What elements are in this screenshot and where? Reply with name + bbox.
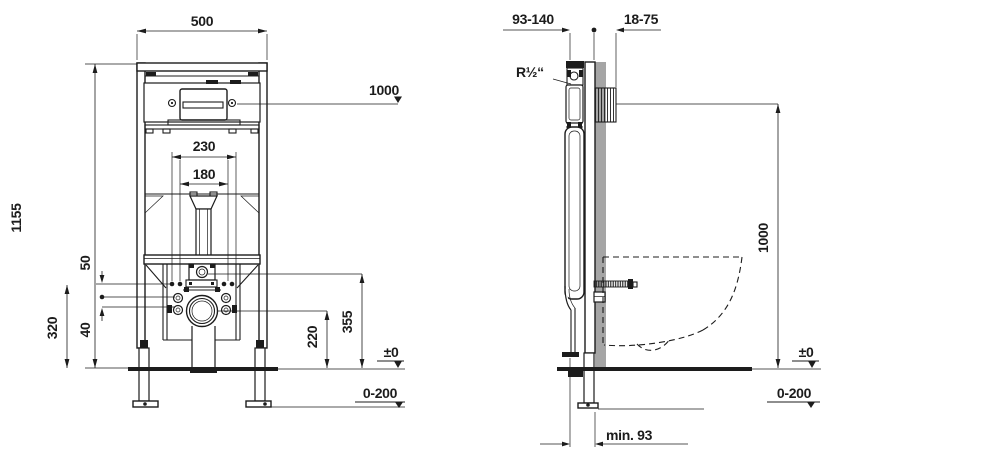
dim-actuator-height-side: 1000: [616, 104, 780, 368]
floor-level-front: ±0: [377, 344, 404, 368]
dim-label: 180: [193, 166, 216, 182]
fixing-dot: [230, 282, 235, 287]
front-left-leg: [139, 348, 149, 401]
water-connection-fitting: [570, 72, 578, 80]
dim-finish-depth: 18-75: [616, 11, 661, 87]
reference-point: [100, 295, 105, 300]
dim-label: 355: [339, 310, 355, 333]
dim-inlet-height: 355: [208, 274, 364, 368]
floor-adjust-side: 0-200: [767, 385, 820, 408]
fixing-dot: [178, 282, 183, 287]
dim-label: ±0: [384, 344, 399, 360]
dim-label: 1155: [8, 203, 24, 233]
dim-label: 93-140: [512, 11, 554, 27]
cistern-side: [562, 61, 584, 357]
dim-min-wall-distance: min. 93: [540, 358, 688, 447]
water-inlet: [197, 267, 208, 278]
drain-outlet: [187, 296, 218, 327]
dim-frame-depth: 93-140: [503, 11, 596, 60]
side-leg: [584, 353, 594, 403]
fixing-bolt: [594, 281, 629, 287]
wc-bowl-outline: [603, 257, 742, 350]
front-view: 500 1155 1000 230: [8, 13, 405, 408]
side-frame-profile: [585, 62, 595, 353]
dim-frame-width: 500: [137, 13, 267, 60]
flush-bend-funnel: [190, 196, 217, 209]
flush-pipe-cap: [562, 352, 579, 357]
fixing-dot: [170, 282, 175, 287]
corner-brace-right: [241, 196, 259, 213]
dim-label: min. 93: [606, 427, 653, 443]
support-crossbar: [144, 255, 260, 264]
water-connection-label: R½“: [516, 64, 571, 84]
dim-label: 230: [193, 138, 216, 154]
dim-label: 220: [304, 325, 320, 348]
dim-label: 40: [77, 322, 93, 337]
corner-brace-left: [145, 196, 163, 213]
dim-fixing-offsets: 50 40 320: [44, 255, 175, 368]
dim-label: 50: [77, 255, 93, 270]
floor-adjust-front: 0-200: [355, 385, 405, 408]
dim-frame-height: 1155: [8, 64, 137, 368]
dim-label: ±0: [799, 344, 814, 360]
dim-label: 1000: [755, 223, 771, 253]
front-right-foot: [246, 401, 271, 407]
dim-label: 320: [44, 316, 60, 339]
front-right-leg: [255, 348, 265, 401]
drawing-canvas: 500 1155 1000 230: [0, 0, 1000, 463]
fixing-dot: [222, 282, 227, 287]
dim-label: 1000: [369, 82, 399, 98]
dim-label: R½“: [516, 64, 544, 80]
front-top-rail: [137, 63, 267, 71]
flush-plate: [180, 89, 227, 120]
dim-label: 0-200: [363, 385, 398, 401]
side-view: 93-140 18-75 R½“ 1000 ±0: [503, 11, 821, 447]
dim-label: 0-200: [777, 385, 812, 401]
flush-pipe: [196, 209, 211, 257]
installation-drawing: 500 1155 1000 230: [0, 0, 1000, 463]
floor-level-side: ±0: [792, 344, 819, 368]
dim-label: 18-75: [624, 11, 659, 27]
dim-label: 500: [191, 13, 214, 29]
